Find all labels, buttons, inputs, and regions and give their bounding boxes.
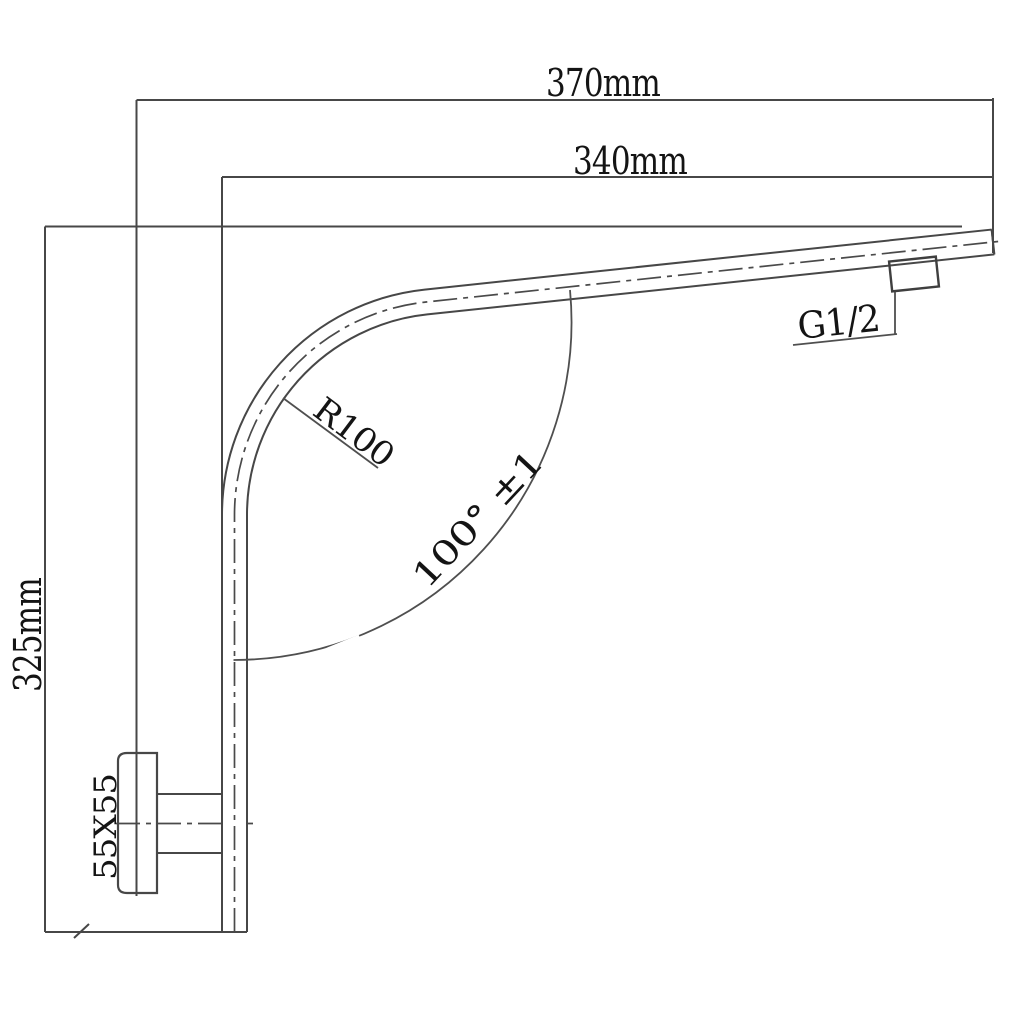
flange-label: 55X55 (88, 774, 124, 880)
dim-340-label: 340mm (573, 139, 687, 183)
dim-370-label: 370mm (546, 61, 660, 105)
radius-label: R100 (306, 389, 401, 474)
dimension-340 (222, 177, 993, 520)
dimension-370 (137, 98, 994, 896)
dim-325-label: 325mm (6, 578, 50, 692)
technical-drawing-page: 370mm 340mm 325mm R100 100° ±1 G1/2 55X5… (0, 0, 1024, 1024)
thread-label: G1/2 (795, 297, 881, 348)
pipe-centerline (234, 241, 1000, 932)
shower-arm-drawing: 370mm 340mm 325mm R100 100° ±1 G1/2 55X5… (0, 0, 1024, 1024)
angle-label: 100° ±1 (405, 443, 552, 596)
